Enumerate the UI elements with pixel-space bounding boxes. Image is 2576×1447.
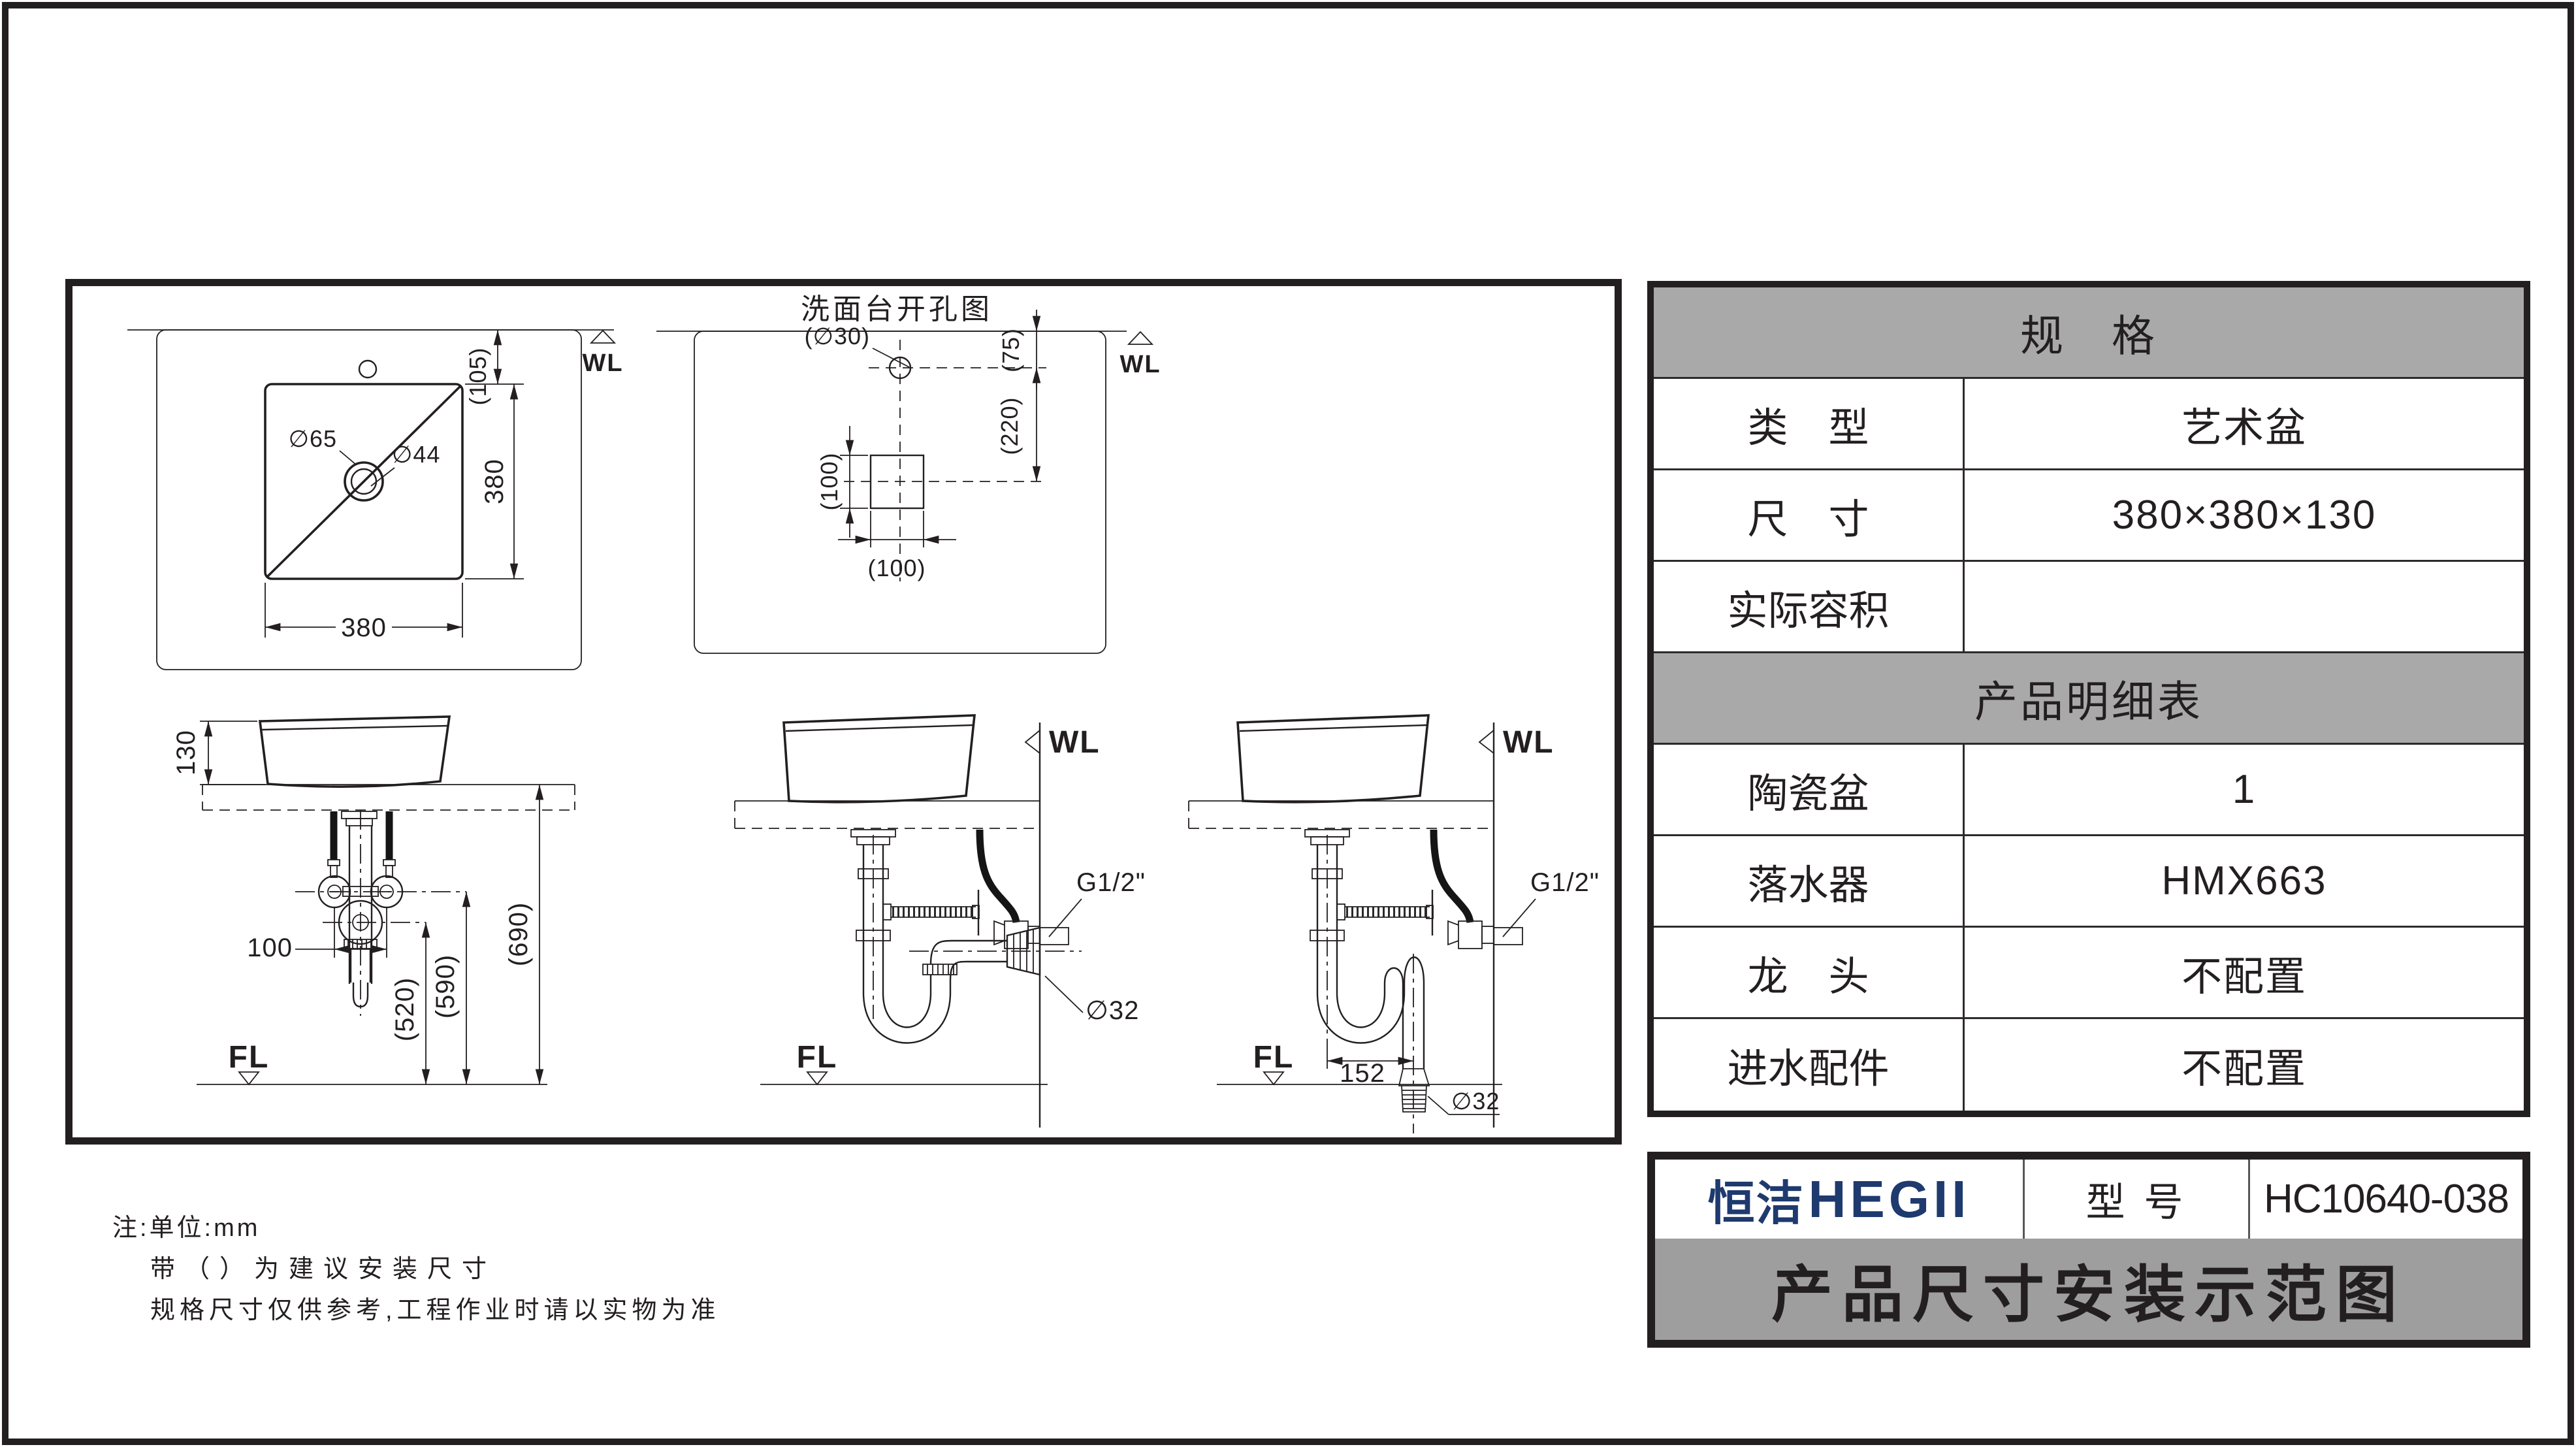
wall-line-label: WL <box>1049 725 1101 760</box>
thread-size-label: G1/2" <box>1076 868 1146 897</box>
row-label: 类 型 <box>1654 379 1965 468</box>
cutout-width-dim: (100) <box>867 555 926 581</box>
floor-drain-thread <box>1402 1086 1426 1112</box>
supply-hose <box>980 830 1016 922</box>
wl-triangle-icon <box>591 331 615 343</box>
wall-line-label: WL <box>582 350 623 377</box>
brand-logo: 恒洁 HEGII <box>1655 1160 2025 1239</box>
floor-line-label: FL <box>797 1040 838 1075</box>
spec-table: 规 格 类 型 艺术盆 尺 寸 380×380×130 实际容积 产品明细表 陶… <box>1647 281 2530 1117</box>
wall-offset-dim-label: (105) <box>464 347 491 405</box>
floor-line-label: FL <box>229 1040 270 1075</box>
thread-size-label: G1/2" <box>1530 868 1600 897</box>
faucet-hole <box>359 361 376 378</box>
row-value: 不配置 <box>1965 928 2524 1017</box>
drawing-front-view: 130 100 (520) <box>172 717 575 1084</box>
valve-floor-dim: (590) <box>431 954 460 1018</box>
s-trap <box>1317 983 1404 1043</box>
drawing-side-view-floor-drain: WL G1/2" <box>1189 715 1600 1133</box>
row-label: 龙 头 <box>1654 928 1965 1017</box>
cutout-height-dim: (100) <box>816 452 843 510</box>
row-label: 落水器 <box>1654 836 1965 926</box>
trap-offset-dim: 152 <box>1340 1059 1385 1088</box>
supply-hose <box>1434 830 1470 922</box>
p-trap <box>863 981 950 1043</box>
drawing-basin-top-view: WL ∅65 ∅44 380 380 (105) <box>127 330 624 670</box>
valve-spacing-dim: 100 <box>247 934 293 962</box>
note-reference-only: 规格尺寸仅供参考,工程作业时请以实物为准 <box>150 1290 720 1325</box>
drawing-countertop-hole-chart: 洗面台开孔图 WL (∅30) (100) (100) (7 <box>656 293 1161 653</box>
depth-dim-label: 380 <box>480 459 509 504</box>
model-number: HC10640-038 <box>2250 1160 2522 1239</box>
wall-line-label: WL <box>1119 351 1161 378</box>
hole-spacing-dim: (220) <box>996 397 1023 455</box>
outlet-dia-label: ∅32 <box>1451 1088 1500 1114</box>
row-value <box>1965 562 2524 651</box>
drain-outer-dia-label: ∅65 <box>289 425 337 452</box>
detail-table-title-row: 产品明细表 <box>1654 653 2524 745</box>
width-dim-label: 380 <box>341 613 387 642</box>
row-value: 1 <box>1965 745 2524 834</box>
detail-title: 产品明细表 <box>1974 667 2203 730</box>
table-row: 进水配件 不配置 <box>1654 1019 2524 1111</box>
note-units: 注:单位:mm <box>112 1207 260 1243</box>
wl-triangle-icon <box>1129 332 1152 344</box>
floor-line-label: FL <box>1253 1040 1295 1075</box>
wl-triangle-icon <box>1479 730 1494 753</box>
row-label: 进水配件 <box>1654 1019 1965 1111</box>
table-row: 落水器 HMX663 <box>1654 836 2524 928</box>
hole-chart-title: 洗面台开孔图 <box>801 293 993 325</box>
table-row: 实际容积 <box>1654 562 2524 653</box>
drawing-side-view-wall-drain: WL G1/2" ∅32 <box>735 715 1146 1128</box>
model-label: 型 号 <box>2025 1160 2250 1239</box>
brand-logo-cn: 恒洁 <box>1708 1165 1805 1233</box>
note-bracket-dims: 带（）为建议安装尺寸 <box>150 1248 496 1284</box>
wl-triangle-icon <box>1025 730 1040 753</box>
spec-table-title-row: 规 格 <box>1654 287 2524 379</box>
document-title-banner: 产品尺寸安装示范图 <box>1655 1239 2522 1340</box>
row-label: 实际容积 <box>1654 562 1965 651</box>
drain-inner-dia-label: ∅44 <box>392 441 440 468</box>
row-value: 不配置 <box>1965 1019 2524 1111</box>
table-row: 陶瓷盆 1 <box>1654 745 2524 836</box>
row-label: 陶瓷盆 <box>1654 745 1965 834</box>
brand-logo-en: HEGII <box>1809 1169 1971 1229</box>
counter-floor-dim: (690) <box>504 902 533 966</box>
document-title: 产品尺寸安装示范图 <box>1771 1245 2406 1334</box>
row-label: 尺 寸 <box>1654 470 1965 560</box>
table-row: 类 型 艺术盆 <box>1654 379 2524 470</box>
trap-floor-dim: (520) <box>391 977 419 1041</box>
title-block: 恒洁 HEGII 型 号 HC10640-038 产品尺寸安装示范图 <box>1647 1152 2530 1348</box>
sheet: WL ∅65 ∅44 380 380 (105) 洗面台开孔图 <box>0 0 2576 1447</box>
table-row: 龙 头 不配置 <box>1654 928 2524 1019</box>
outlet-dia-label: ∅32 <box>1086 996 1139 1025</box>
wall-line-label: WL <box>1503 725 1554 760</box>
row-value: 380×380×130 <box>1965 470 2524 560</box>
hole-dia-label: (∅30) <box>805 323 870 350</box>
spec-title: 规 格 <box>2020 301 2157 364</box>
basin-height-dim: 130 <box>172 730 201 775</box>
row-value: HMX663 <box>1965 836 2524 926</box>
row-value: 艺术盆 <box>1965 379 2524 468</box>
table-row: 尺 寸 380×380×130 <box>1654 470 2524 562</box>
hole-wall-dim: (75) <box>997 328 1024 372</box>
